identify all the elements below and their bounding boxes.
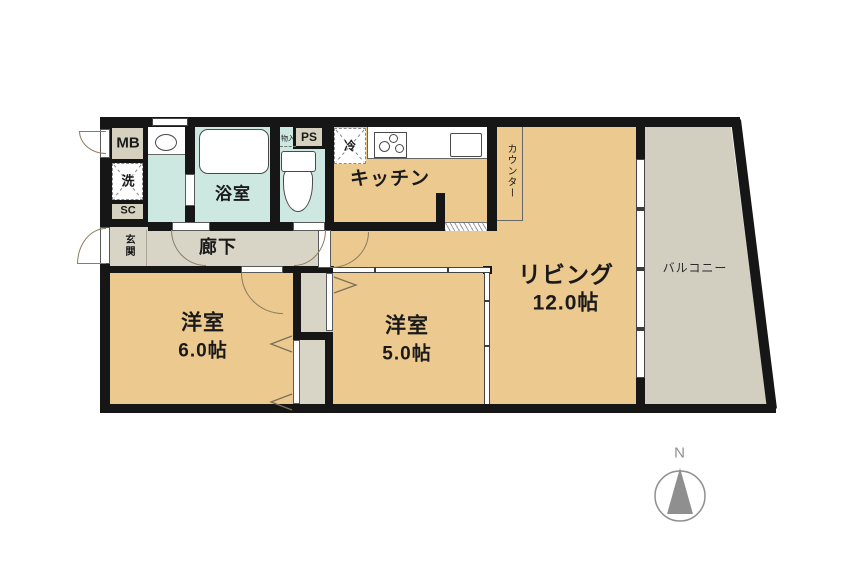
wall-closet-left [293, 273, 301, 332]
wall-toilet-kitchen [325, 117, 334, 222]
window-tick [637, 267, 644, 271]
partition-bedroom-b-top [333, 267, 490, 273]
window-tick [637, 327, 644, 331]
label-living-size: 12.0帖 [533, 293, 600, 314]
bathtub [199, 129, 269, 174]
label-entrance: 玄関 [123, 234, 133, 258]
label-balcony: バルコニー [663, 262, 728, 274]
wall-bath-toilet [270, 117, 280, 222]
wall-kitchen-right [487, 117, 497, 231]
label-counter: カウンター [505, 144, 515, 199]
washroom-window [152, 118, 188, 126]
stove-burner-3 [395, 144, 404, 153]
wall-corridor-bottom [100, 266, 334, 273]
label-shoe-closet: SC [120, 206, 135, 217]
label-meter-box: MB [116, 136, 139, 151]
stove-burner-2 [389, 134, 398, 143]
partition-tick [447, 267, 449, 273]
bedroom-a-door-gap [241, 266, 283, 273]
label-storage: 物入 [281, 136, 295, 143]
label-bedroom-b: 洋室 [385, 316, 429, 337]
closet-lower [300, 340, 325, 404]
partition-tick [484, 300, 490, 302]
closet-upper-door [326, 273, 333, 331]
kitchen-opening-hatch [445, 222, 487, 231]
label-bathroom: 浴室 [215, 186, 251, 203]
entrance-door-arc [77, 228, 106, 264]
label-living: リビング [518, 264, 614, 287]
label-pipe-space: PS [301, 131, 317, 143]
label-kitchen: キッチン [350, 170, 430, 189]
label-washer: 洗 [121, 175, 134, 188]
label-bedroom-b-size: 5.0帖 [382, 345, 431, 364]
partition-tick [484, 345, 490, 347]
toilet-tank [281, 151, 316, 172]
label-bedroom-a: 洋室 [181, 313, 225, 334]
closet-upper [301, 273, 326, 332]
label-fridge: 冷 [344, 140, 356, 152]
wall-left [100, 117, 110, 413]
wall-closet-right [325, 340, 333, 404]
compass-circle-icon [655, 471, 705, 521]
floor-plan: MB 洗 SC 玄関 浴室 物入 PS 冷 キッチン カウンター 廊下 リビング… [0, 0, 848, 579]
window-tick [637, 207, 644, 211]
wall-balcony-lower [636, 378, 645, 404]
storage-divider [280, 146, 296, 147]
bathroom-door [185, 174, 195, 206]
stove-burner-1 [379, 141, 390, 152]
wall-bottom [100, 404, 776, 413]
wall-balcony-upper [636, 122, 645, 159]
wall-closet-mid [293, 332, 333, 340]
partition-tick [374, 267, 376, 273]
washbasin-sink [155, 134, 177, 151]
label-compass-n: N [674, 446, 686, 461]
label-corridor: 廊下 [199, 238, 237, 256]
label-bedroom-a-size: 6.0帖 [178, 342, 227, 361]
kitchen-sink [450, 133, 482, 157]
mb-door-arc [79, 131, 106, 154]
wall-kitchen-stub [436, 193, 445, 222]
partition-bedroom-b-right [484, 273, 490, 404]
compass-north-icon [667, 468, 693, 514]
closet-lower-door [293, 340, 300, 404]
wall-wash-bath [185, 117, 195, 222]
entrance-corridor-divider [146, 230, 147, 266]
